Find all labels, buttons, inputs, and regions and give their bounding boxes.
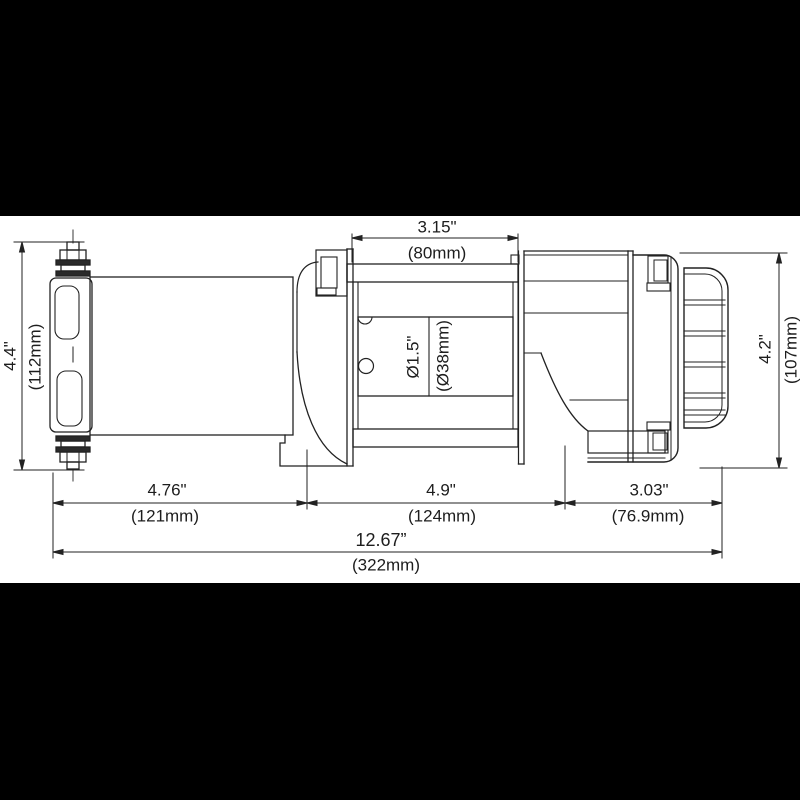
mounting-plate [50, 278, 92, 432]
clutch-end-cap [684, 268, 728, 428]
winch-drawing-page: 3.15" (80mm) 4.4" (112mm) 4.2" (107mm) Ø… [0, 0, 800, 800]
dim-drum-length-inches: 4.9" [426, 482, 456, 499]
dim-right-height-mm: (107mm) [783, 316, 800, 384]
dim-drum-length-mm: (124mm) [408, 508, 476, 525]
drum-support-right [511, 251, 665, 464]
winch-line-art [0, 0, 800, 800]
dim-motor-length-inches: 4.76" [147, 482, 186, 499]
dim-right-height-inches: 4.2" [757, 334, 774, 364]
gearbox-housing [588, 251, 678, 462]
dim-overall-length-inches: 12.67” [355, 531, 406, 549]
cooling-ribs [684, 300, 725, 415]
dim-gearbox-length-mm: (76.9mm) [612, 508, 685, 525]
motor-housing [90, 277, 293, 435]
dim-drum-diameter-mm: (Ø38mm) [435, 320, 452, 392]
dim-left-height-inches: 4.4" [2, 341, 19, 371]
dim-left-height-mm: (112mm) [27, 324, 44, 391]
rope-drum [347, 264, 518, 447]
dim-overall-length-mm: (322mm) [352, 557, 420, 574]
dim-drum-diameter-inches: Ø1.5" [405, 336, 422, 379]
dim-motor-length-mm: (121mm) [131, 508, 199, 525]
dim-top-width-mm: (80mm) [408, 245, 467, 262]
dim-gearbox-length-inches: 3.03" [629, 482, 668, 499]
drum-support-left [280, 249, 353, 466]
mounting-bolt-bottom [56, 436, 90, 481]
dim-top-width-inches: 3.15" [417, 219, 456, 236]
mounting-bolt-top [56, 230, 90, 276]
